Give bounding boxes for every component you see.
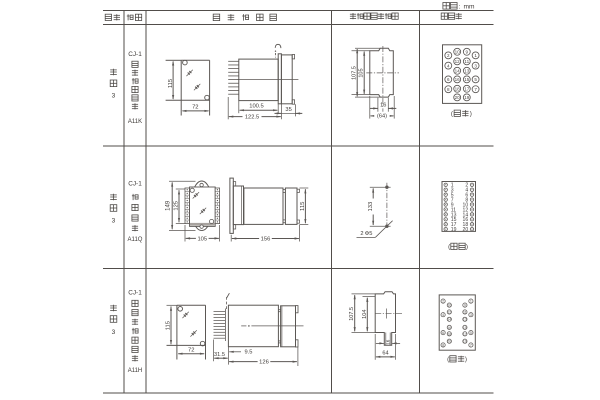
svg-text:4: 4 xyxy=(442,313,444,317)
svg-text:11: 11 xyxy=(463,310,467,314)
svg-text:CJ-1: CJ-1 xyxy=(128,289,142,296)
svg-text:16: 16 xyxy=(447,326,451,330)
svg-text:3: 3 xyxy=(112,218,116,225)
svg-text:1: 1 xyxy=(470,300,472,304)
svg-text:35: 35 xyxy=(285,107,291,113)
svg-text:15: 15 xyxy=(463,326,467,330)
svg-text::: : xyxy=(459,3,461,10)
svg-text:9: 9 xyxy=(466,50,469,55)
svg-text:72: 72 xyxy=(192,104,198,110)
svg-text:107.5: 107.5 xyxy=(349,307,355,321)
svg-text:115: 115 xyxy=(166,321,172,330)
svg-text:17: 17 xyxy=(464,87,470,92)
svg-text:12: 12 xyxy=(447,310,451,314)
svg-text:7: 7 xyxy=(474,87,477,92)
svg-text:A11K: A11K xyxy=(128,119,142,125)
svg-text:20: 20 xyxy=(463,227,469,233)
svg-text:31.5: 31.5 xyxy=(214,352,225,358)
svg-text:3: 3 xyxy=(112,329,116,336)
svg-text:11: 11 xyxy=(464,59,469,64)
svg-text:105: 105 xyxy=(197,236,207,242)
svg-text:125: 125 xyxy=(174,201,180,211)
svg-text:): ) xyxy=(470,111,472,118)
svg-text:6: 6 xyxy=(442,331,444,335)
svg-text:Φ5: Φ5 xyxy=(365,231,373,237)
svg-text:(: ( xyxy=(451,111,454,118)
svg-text:9.5: 9.5 xyxy=(245,350,253,356)
svg-text:104: 104 xyxy=(362,310,368,319)
svg-text:10: 10 xyxy=(455,50,461,55)
svg-text:19: 19 xyxy=(451,227,457,233)
svg-text:122.5: 122.5 xyxy=(245,114,259,120)
svg-text:(64): (64) xyxy=(377,114,387,120)
svg-text:6: 6 xyxy=(447,77,450,82)
svg-text:15: 15 xyxy=(464,77,470,82)
svg-text:19: 19 xyxy=(464,95,470,100)
svg-text:14: 14 xyxy=(455,69,461,74)
svg-text:13: 13 xyxy=(463,318,467,322)
svg-text:CJ-1: CJ-1 xyxy=(128,51,142,58)
svg-text:8: 8 xyxy=(447,87,450,92)
svg-text:20: 20 xyxy=(447,340,451,344)
svg-text:5: 5 xyxy=(470,331,472,335)
svg-text:115: 115 xyxy=(168,79,174,88)
svg-text:A11H: A11H xyxy=(128,368,143,374)
svg-text:7: 7 xyxy=(470,343,472,347)
svg-text:100.5: 100.5 xyxy=(249,104,264,110)
svg-text:mm: mm xyxy=(464,3,475,10)
svg-text:9: 9 xyxy=(464,304,466,308)
svg-text:2: 2 xyxy=(442,300,444,304)
svg-text:13: 13 xyxy=(464,69,470,74)
svg-text:107.5: 107.5 xyxy=(352,66,358,80)
svg-text:18: 18 xyxy=(447,332,451,336)
svg-text:3: 3 xyxy=(470,313,472,317)
svg-text:14: 14 xyxy=(447,318,451,322)
svg-text:20: 20 xyxy=(455,95,461,100)
svg-text:16: 16 xyxy=(455,77,461,82)
svg-text:133: 133 xyxy=(368,202,374,212)
svg-text:126: 126 xyxy=(259,359,269,365)
svg-text:): ) xyxy=(465,356,467,363)
svg-text:3: 3 xyxy=(112,93,116,100)
svg-text:4: 4 xyxy=(447,63,450,68)
svg-text:10: 10 xyxy=(447,304,451,308)
svg-text:A11Q: A11Q xyxy=(128,237,143,243)
svg-text:1: 1 xyxy=(474,53,477,58)
svg-text:115: 115 xyxy=(300,202,306,211)
svg-text:156: 156 xyxy=(261,236,271,242)
svg-text:12: 12 xyxy=(455,59,461,64)
svg-text:2: 2 xyxy=(447,53,450,58)
svg-text:16: 16 xyxy=(385,339,390,345)
svg-text:64: 64 xyxy=(382,351,388,357)
svg-text:105: 105 xyxy=(359,68,365,77)
svg-text:5: 5 xyxy=(474,77,477,82)
svg-text:): ) xyxy=(466,244,468,251)
svg-text:17: 17 xyxy=(463,332,467,336)
svg-text:CJ-1: CJ-1 xyxy=(128,181,142,188)
svg-text:2: 2 xyxy=(360,231,363,237)
svg-text:16: 16 xyxy=(380,103,386,109)
svg-text:72: 72 xyxy=(188,347,194,353)
svg-text:18: 18 xyxy=(455,87,461,92)
svg-text:149: 149 xyxy=(166,200,172,211)
svg-text:3: 3 xyxy=(474,63,477,68)
svg-text:19: 19 xyxy=(463,340,467,344)
svg-text:8: 8 xyxy=(442,343,444,347)
